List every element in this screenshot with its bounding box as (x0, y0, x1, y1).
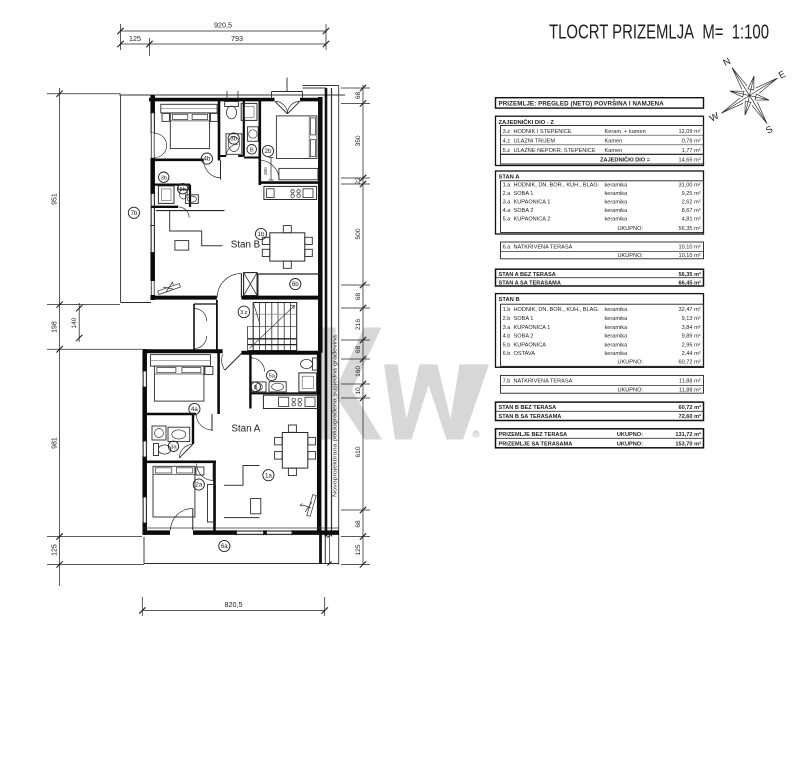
svg-text:SOBA 1: SOBA 1 (514, 316, 534, 322)
svg-text:Novoprojektirana poluugrađena: Novoprojektirana poluugrađena susjedna g… (332, 334, 338, 497)
svg-text:STAN B: STAN B (499, 297, 520, 303)
svg-text:3.a: 3.a (503, 200, 512, 206)
svg-text:6.a: 6.a (503, 244, 512, 250)
svg-text:0,79: 0,79 (682, 139, 693, 145)
svg-text:4.a: 4.a (503, 208, 512, 214)
svg-text:4.z: 4.z (503, 139, 511, 145)
svg-text:m²: m² (694, 359, 701, 365)
svg-text:920,5: 920,5 (214, 21, 232, 30)
svg-text:HODNIK, DN. BOR., KUH., BLAG.: HODNIK, DN. BOR., KUH., BLAG. (514, 183, 600, 189)
svg-text:6a: 6a (221, 543, 228, 550)
svg-text:PRIZEMLJE BEZ TERASA: PRIZEMLJE BEZ TERASA (499, 432, 568, 438)
svg-text:OSTAVA: OSTAVA (514, 351, 536, 357)
svg-text:PRIZEMLJE: PREGLED (NETO) POVR: PRIZEMLJE: PREGLED (NETO) POVRŠINA I NAM… (499, 99, 665, 107)
svg-text:keramika: keramika (605, 208, 629, 214)
svg-text:125: 125 (52, 544, 59, 556)
svg-text:m²: m² (694, 244, 701, 250)
svg-text:keramika: keramika (605, 183, 629, 189)
svg-text:6b: 6b (292, 281, 299, 288)
svg-text:820,5: 820,5 (225, 600, 243, 609)
svg-text:3.z: 3.z (240, 310, 247, 316)
svg-text:UKUPNO:: UKUPNO: (618, 226, 644, 232)
svg-text:m²: m² (694, 404, 701, 411)
svg-text:610: 610 (355, 446, 362, 457)
svg-text:STAN A: STAN A (499, 174, 521, 180)
svg-text:m²: m² (694, 387, 701, 393)
svg-text:keramika: keramika (605, 342, 629, 348)
svg-text:153,70: 153,70 (675, 441, 692, 447)
svg-text:m²: m² (694, 200, 701, 206)
svg-text:6.b: 6.b (503, 351, 511, 357)
svg-text:10,10: 10,10 (679, 253, 693, 259)
svg-text:m²: m² (694, 191, 701, 197)
svg-text:STAN A BEZ TERASA: STAN A BEZ TERASA (499, 272, 556, 278)
svg-text:ZAJEDNIČKI DIO =: ZAJEDNIČKI DIO = (600, 157, 651, 164)
svg-text:7b: 7b (130, 210, 137, 217)
svg-text:125: 125 (355, 544, 362, 555)
svg-text:4.b: 4.b (503, 334, 511, 340)
svg-text:KUPAONICA 1: KUPAONICA 1 (514, 325, 551, 331)
svg-text:UKUPNO:: UKUPNO: (618, 387, 644, 393)
svg-text:Kamen: Kamen (605, 148, 623, 154)
svg-text:keramika: keramika (605, 325, 629, 331)
svg-text:HODNIK, DN. BOR., KUH., BLAG.: HODNIK, DN. BOR., KUH., BLAG. (514, 307, 600, 313)
svg-text:3.a: 3.a (503, 325, 512, 331)
svg-text:PRIZEMLJE SA TERASAMA: PRIZEMLJE SA TERASAMA (499, 441, 573, 447)
svg-text:m²: m² (694, 413, 701, 420)
svg-text:keramika: keramika (605, 351, 629, 357)
svg-text:keramika: keramika (605, 217, 629, 223)
svg-text:5.z: 5.z (503, 148, 511, 154)
svg-text:m²: m² (694, 271, 701, 278)
svg-text:56,35: 56,35 (679, 226, 693, 232)
svg-text:m²: m² (694, 129, 701, 135)
svg-text:m²: m² (694, 351, 701, 357)
svg-text:m²: m² (694, 280, 701, 287)
svg-text:UKUPNO:: UKUPNO: (618, 253, 644, 259)
svg-text:m²: m² (694, 378, 701, 384)
svg-text:keramika: keramika (605, 307, 629, 313)
svg-text:125: 125 (129, 34, 141, 43)
svg-text:Kamen: Kamen (605, 139, 623, 145)
svg-text:9,89: 9,89 (682, 334, 693, 340)
svg-text:951: 951 (52, 193, 59, 205)
svg-text:31,00: 31,00 (679, 183, 693, 189)
svg-text:216: 216 (355, 319, 362, 330)
svg-text:56,35: 56,35 (679, 272, 693, 278)
svg-text:60,72: 60,72 (679, 359, 693, 365)
svg-text:m²: m² (694, 139, 701, 145)
svg-text:keramika: keramika (605, 316, 629, 322)
svg-text:380: 380 (263, 167, 268, 175)
svg-text:9,13: 9,13 (682, 316, 693, 322)
svg-text:m²: m² (694, 440, 701, 447)
svg-text:2.b: 2.b (503, 316, 511, 322)
svg-text:m²: m² (694, 342, 701, 348)
svg-text:Stan A: Stan A (231, 424, 260, 435)
svg-text:1b: 1b (258, 231, 265, 238)
svg-text:SOBA 2: SOBA 2 (514, 334, 534, 340)
svg-text:keramika: keramika (605, 191, 629, 197)
svg-text:UKUPNO:: UKUPNO: (617, 432, 643, 438)
svg-text:1.a: 1.a (503, 183, 512, 189)
svg-text:7.b: 7.b (503, 378, 511, 384)
svg-text:12,09: 12,09 (679, 129, 693, 135)
svg-text:2b: 2b (265, 148, 272, 155)
svg-text:KUPAONICA 2: KUPAONICA 2 (514, 217, 551, 223)
svg-text:2,44: 2,44 (682, 351, 693, 357)
svg-text:68: 68 (355, 293, 362, 301)
svg-text:m²: m² (694, 334, 701, 340)
svg-text:ZAJEDNIČKI DIO - Z: ZAJEDNIČKI DIO - Z (499, 119, 555, 126)
svg-text:4b: 4b (203, 156, 210, 163)
svg-text:m²: m² (694, 217, 701, 223)
svg-text:m²: m² (694, 208, 701, 214)
svg-text:TLOCRT PRIZEMLJA M= 1:100: TLOCRT PRIZEMLJA M= 1:100 (549, 22, 769, 44)
svg-text:3b: 3b (230, 136, 237, 143)
svg-text:UKUPNO:: UKUPNO: (618, 359, 644, 365)
svg-text:5a: 5a (269, 374, 276, 380)
svg-text:981: 981 (52, 437, 59, 449)
svg-text:SOBA 1: SOBA 1 (514, 191, 534, 197)
svg-text:500: 500 (355, 228, 362, 239)
svg-text:60,72: 60,72 (679, 405, 693, 411)
svg-text:66,45: 66,45 (679, 281, 693, 287)
svg-text:8,67: 8,67 (682, 208, 693, 214)
svg-text:11,88: 11,88 (679, 387, 693, 393)
svg-text:2.a: 2.a (503, 191, 512, 197)
svg-text:72,60: 72,60 (679, 414, 693, 420)
svg-text:KUPAONICA 1: KUPAONICA 1 (514, 200, 551, 206)
svg-text:68: 68 (355, 345, 362, 353)
svg-text:1a: 1a (265, 472, 272, 479)
svg-text:4a: 4a (191, 406, 198, 413)
svg-text:NATKRIVENA TERASA: NATKRIVENA TERASA (514, 378, 573, 384)
svg-text:14,65: 14,65 (679, 158, 693, 164)
svg-text:3.z: 3.z (503, 129, 511, 135)
svg-text:5.a: 5.a (503, 217, 512, 223)
svg-text:350: 350 (355, 135, 362, 146)
svg-text:10: 10 (355, 387, 362, 395)
svg-text:160: 160 (355, 366, 362, 377)
svg-text:UKUPNO:: UKUPNO: (617, 441, 643, 447)
svg-text:3b: 3b (161, 175, 167, 181)
svg-text:3a: 3a (170, 444, 177, 450)
svg-text:m²: m² (694, 307, 701, 313)
svg-text:131,72: 131,72 (675, 432, 692, 438)
svg-text:NATKRIVENA TERASA: NATKRIVENA TERASA (514, 244, 573, 250)
svg-text:STAN A SA TERASAMA: STAN A SA TERASAMA (499, 281, 561, 287)
svg-text:KUPAONICA: KUPAONICA (514, 342, 547, 348)
svg-text:m²: m² (694, 148, 701, 154)
svg-text:B: B (254, 385, 258, 391)
svg-text:ULAZNI TRIJEM: ULAZNI TRIJEM (514, 139, 556, 145)
svg-text:3,84: 3,84 (682, 325, 693, 331)
svg-text:793: 793 (231, 34, 243, 43)
svg-text:B: B (250, 147, 254, 153)
svg-text:m²: m² (694, 226, 701, 232)
svg-text:2a: 2a (195, 482, 202, 489)
svg-text:m²: m² (694, 325, 701, 331)
svg-text:2,95: 2,95 (682, 342, 693, 348)
svg-text:HODNIK I STEPENICE: HODNIK I STEPENICE (514, 129, 572, 135)
svg-text:68: 68 (355, 520, 362, 528)
svg-text:1,77: 1,77 (682, 148, 693, 154)
svg-text:m²: m² (694, 183, 701, 189)
svg-text:198: 198 (52, 321, 59, 333)
svg-text:m²: m² (694, 158, 701, 164)
svg-text:Stan B: Stan B (231, 239, 261, 250)
svg-text:Keram. + kamen: Keram. + kamen (605, 129, 646, 135)
svg-text:9,25: 9,25 (682, 191, 693, 197)
svg-text:SOBA 2: SOBA 2 (514, 208, 534, 214)
svg-text:22: 22 (355, 177, 362, 185)
svg-text:5.b: 5.b (503, 342, 511, 348)
svg-text:m²: m² (694, 316, 701, 322)
svg-text:STAN B SA TERASAMA: STAN B SA TERASAMA (499, 414, 562, 420)
svg-text:1.b: 1.b (503, 307, 511, 313)
svg-text:4,81: 4,81 (682, 217, 693, 223)
svg-text:32,47: 32,47 (679, 307, 693, 313)
svg-text:m²: m² (694, 431, 701, 438)
svg-text:11,88: 11,88 (679, 378, 693, 384)
svg-text:ULAZNE NEPOKR. STEPENICE: ULAZNE NEPOKR. STEPENICE (514, 148, 596, 154)
svg-text:68: 68 (355, 92, 362, 100)
svg-text:keramika: keramika (605, 200, 629, 206)
svg-text:140: 140 (71, 317, 78, 328)
svg-text:2,62: 2,62 (682, 200, 693, 206)
svg-text:STAN B BEZ TERASA: STAN B BEZ TERASA (499, 405, 557, 411)
svg-text:5b: 5b (180, 187, 186, 193)
svg-text:m²: m² (694, 253, 701, 259)
svg-text:keramika: keramika (605, 334, 629, 340)
svg-text:10,10: 10,10 (679, 244, 693, 250)
